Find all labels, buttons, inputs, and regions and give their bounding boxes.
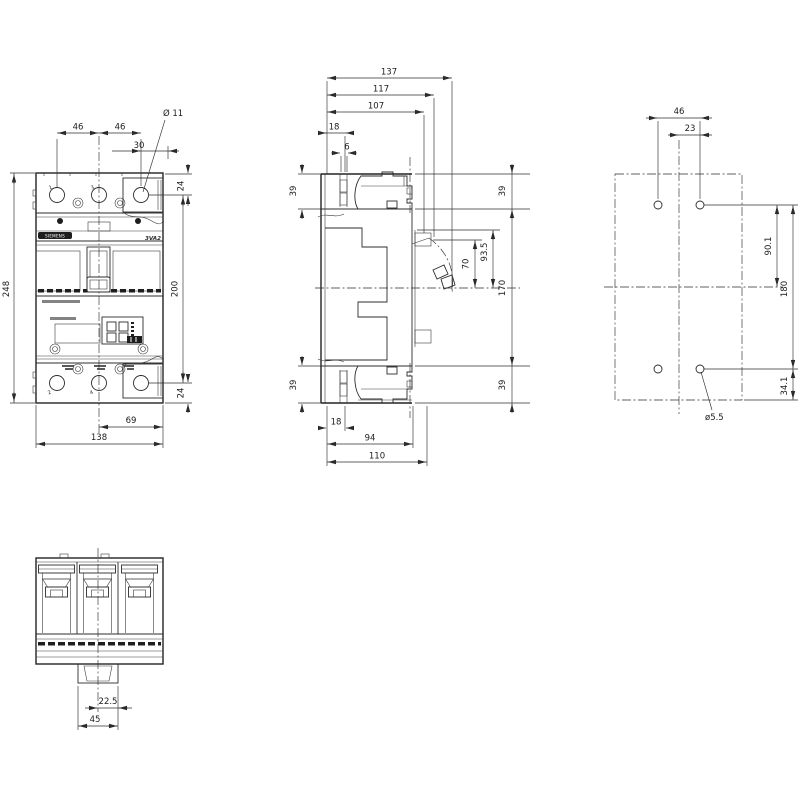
- dim-label: 93.5: [480, 243, 490, 262]
- dim-label: 117: [373, 85, 389, 95]
- dim-label: 39: [289, 186, 299, 197]
- technical-drawing: SIEMENS 3VA2: [0, 0, 800, 800]
- dim-label: 110: [369, 452, 385, 462]
- dim-label: 30: [134, 141, 145, 151]
- drawing-canvas: SIEMENS 3VA2: [0, 0, 800, 800]
- terminal-4-label: 4: [89, 390, 94, 397]
- dim-label: 200: [171, 281, 181, 297]
- dim-label: 39: [289, 380, 299, 391]
- dim-label: 248: [2, 281, 12, 297]
- terminal-tower: [122, 565, 158, 633]
- dim-label: 70: [462, 259, 472, 270]
- dim-label: 34.1: [780, 377, 790, 396]
- dim-label: 170: [498, 280, 508, 296]
- front-view: SIEMENS 3VA2: [2, 108, 192, 448]
- dim-label: 46: [674, 107, 685, 117]
- side-view: 137 117 107 18 6 39 39: [289, 68, 530, 467]
- dim-label: 24: [177, 181, 187, 192]
- drilling-plan-view: 46 23 90.1 180 34.1 ø5.5: [604, 107, 798, 423]
- brand-label: SIEMENS: [45, 233, 65, 238]
- bottom-view: 22.5 45: [36, 548, 163, 730]
- dim-label-hole-dia: ø5.5: [705, 413, 724, 423]
- dim-label: 39: [498, 380, 508, 391]
- dim-label: 94: [365, 434, 376, 444]
- dim-label-hole-dia: Ø 11: [163, 108, 183, 119]
- terminal-1-label: 1: [48, 185, 53, 192]
- vent-slots: [38, 642, 161, 646]
- terminal-tower: [80, 565, 116, 633]
- dim-label: 18: [329, 123, 340, 133]
- dim-label: 90.1: [764, 237, 774, 256]
- dim-label: 107: [368, 102, 384, 112]
- dim-label: 18: [331, 418, 342, 428]
- dim-label: 22.5: [99, 697, 118, 707]
- dim-label: 45: [90, 715, 101, 725]
- dim-label: 6: [344, 143, 349, 153]
- dim-label: 46: [73, 123, 84, 133]
- dim-label: 46: [115, 123, 126, 133]
- dim-label: 180: [780, 281, 790, 297]
- dim-label: 138: [91, 433, 107, 443]
- terminal-3-label: 3: [90, 185, 95, 192]
- dim-label: 23: [685, 124, 696, 134]
- dim-label: 24: [177, 388, 187, 399]
- terminal-tower: [39, 565, 75, 633]
- dim-label: 137: [381, 68, 397, 78]
- terminal-2-label: 2: [47, 390, 52, 397]
- dim-label: 39: [498, 186, 508, 197]
- dim-label: 69: [126, 416, 137, 426]
